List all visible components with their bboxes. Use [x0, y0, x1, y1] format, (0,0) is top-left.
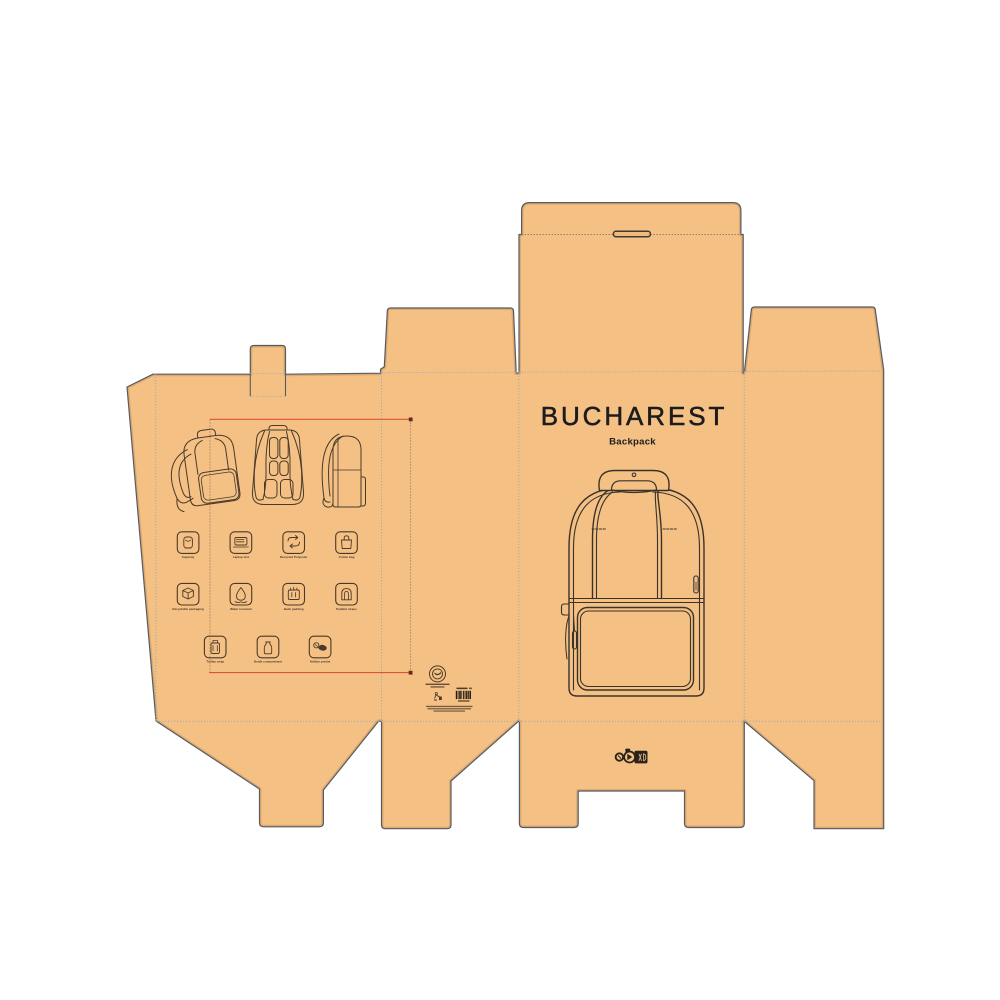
svg-text:Backpack: Backpack: [609, 436, 656, 447]
svg-text:Padded straps: Padded straps: [336, 607, 357, 611]
svg-text:BUCHAREST: BUCHAREST: [541, 401, 727, 431]
svg-text:Capacity: Capacity: [182, 555, 195, 559]
svg-text:Recycled Polyester: Recycled Polyester: [280, 555, 308, 559]
svg-text:Cotton bag: Cotton bag: [339, 555, 355, 559]
svg-text:Trolley strap: Trolley strap: [206, 659, 224, 663]
svg-text:Back padding: Back padding: [284, 607, 304, 611]
svg-text:Hidden pocket: Hidden pocket: [310, 659, 331, 663]
svg-text:Recyclable packaging: Recyclable packaging: [172, 607, 204, 611]
svg-text:Bottle compartment: Bottle compartment: [254, 659, 282, 663]
svg-text:Laptop slot: Laptop slot: [233, 555, 249, 559]
svg-text:Water resistant: Water resistant: [230, 607, 252, 611]
